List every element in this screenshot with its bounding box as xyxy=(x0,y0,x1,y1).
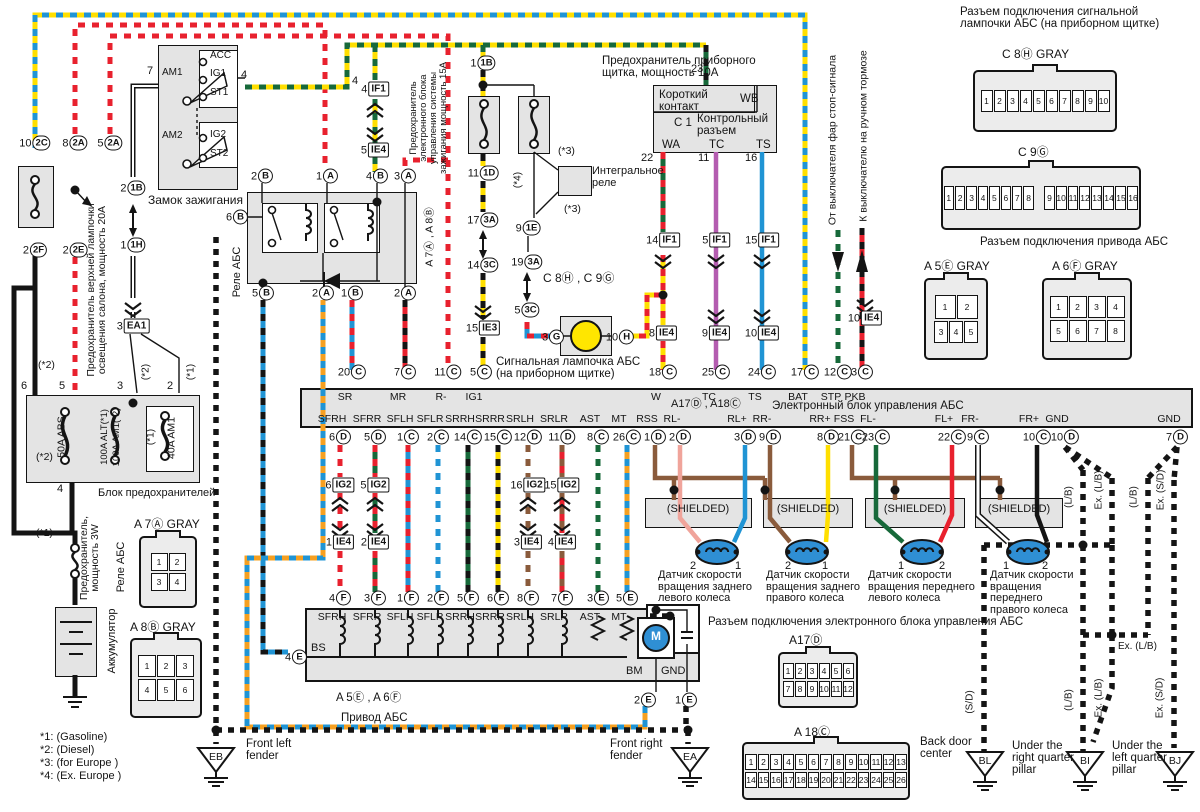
fuse-ref-IE4: 10IE4 xyxy=(745,326,779,341)
pin-number: 2 xyxy=(63,244,69,256)
connector-pin-row: 12345678910111213 xyxy=(744,754,908,770)
diagram-label: 100A AM1(*2) xyxy=(112,397,122,477)
connector-pin-cell: 1 xyxy=(151,553,168,571)
diagram-label: Ex. (L/B) xyxy=(1095,669,1106,727)
pin-number: 2 xyxy=(120,182,126,194)
pin-number: 7 xyxy=(551,592,557,604)
diagram-label: 5 xyxy=(59,381,65,393)
pin-C: 22C xyxy=(938,430,966,445)
pin-D: 9D xyxy=(759,430,781,445)
diagram-label: C 1 xyxy=(674,117,692,129)
connector-pin-cell: 5 xyxy=(964,321,978,343)
pin-B: 1B xyxy=(341,286,363,301)
pin-number: 5 xyxy=(97,137,103,149)
pin-D: 5D xyxy=(364,430,386,445)
diagram-label: От выключателя фар стоп-сигнала xyxy=(827,51,838,229)
ecu-pin-label: TC xyxy=(702,392,716,403)
connector-pin-cell: 6 xyxy=(808,754,820,770)
pin-E: 4E xyxy=(285,650,307,665)
pin-number: 18 xyxy=(649,366,661,378)
connector-pin-row: 5678 xyxy=(1044,320,1130,342)
connector-pin-cell: 3 xyxy=(966,186,976,210)
pin-D: 3D xyxy=(734,430,756,445)
connector-pin-cell: 4 xyxy=(783,754,795,770)
connector-pin-cell: 11 xyxy=(831,681,842,697)
connector-pin-cell: 5 xyxy=(831,663,842,679)
connector-pin-cell: 10 xyxy=(1056,186,1067,210)
connector-pin-cell: 8 xyxy=(1072,90,1084,112)
pin-D: 7D xyxy=(1166,430,1188,445)
pin-number: 4 xyxy=(285,651,291,663)
actuator-pin-label: SFLH xyxy=(387,612,414,623)
pin-code: B xyxy=(259,286,274,301)
connector-pin-cell: 2 xyxy=(157,655,175,677)
pin-code: 2E xyxy=(70,243,88,258)
connector-pin-cell: 10 xyxy=(819,681,830,697)
diagram-label: (S/D) xyxy=(966,681,977,723)
pin-C: 5C xyxy=(470,365,492,380)
fuse-ref-IG2: 5IG2 xyxy=(360,478,389,493)
pin-E: 1E xyxy=(675,693,697,708)
pin-code: D xyxy=(1173,430,1188,445)
diagram-label: Датчик скорости вращения заднего правого… xyxy=(766,570,876,605)
diagram-label: IG1 xyxy=(210,69,226,80)
connector-pin-row: 12345678910 xyxy=(975,90,1115,112)
connector-pin-cell: 6 xyxy=(1046,90,1058,112)
connector-pin-row: 123456 xyxy=(780,663,856,679)
pin-code: C xyxy=(858,365,873,380)
pin-code: IF1 xyxy=(758,233,778,248)
connector-pin-cell: 3 xyxy=(807,663,818,679)
pin-code: IE4 xyxy=(368,143,389,158)
connector-pin-cell: 12 xyxy=(883,754,895,770)
connector-pin-cell: 11 xyxy=(1068,186,1079,210)
pin-code: C xyxy=(662,365,677,380)
pin-C: 17C xyxy=(791,365,819,380)
pin-number: 1 xyxy=(341,287,347,299)
pin-number: 5 xyxy=(457,592,463,604)
diagram-label: GND xyxy=(661,666,685,678)
diagram-label: (L/B) xyxy=(1065,679,1076,721)
pin-number: 10 xyxy=(848,312,860,324)
fuse-ref-IG2: 6IG2 xyxy=(325,478,354,493)
pin-code: C xyxy=(761,365,776,380)
connector-pin-cell: 1 xyxy=(944,186,954,210)
connector-title: C 9Ⓖ xyxy=(1018,146,1049,159)
ecu-pin-label: SR xyxy=(338,392,353,403)
component-box xyxy=(518,96,550,154)
pin-code: H xyxy=(619,330,634,345)
diagram-label: (*2) xyxy=(38,360,55,371)
diagram-label: Ex. (L/B) xyxy=(1118,642,1157,653)
actuator-pin-label: SRRR xyxy=(475,612,505,623)
pin-code: A xyxy=(401,169,416,184)
pin-3A: 173A xyxy=(467,213,498,228)
diagram-label: 16 xyxy=(745,153,757,165)
pin-number: 25 xyxy=(702,366,714,378)
pin-code: 2F xyxy=(30,243,47,258)
pin-number: 12 xyxy=(824,366,836,378)
pin-code: F xyxy=(524,591,539,606)
connector-pin-cell: 1 xyxy=(138,655,156,677)
pin-code: F xyxy=(494,591,509,606)
pin-F: 6F xyxy=(487,591,509,606)
connector-pin-cell: 15 xyxy=(1115,186,1126,210)
pin-2A: 82A xyxy=(62,136,87,151)
ecu-pin-label: SRRR xyxy=(475,414,505,425)
pin-code: C xyxy=(401,365,416,380)
diagram-label: (*2) xyxy=(36,452,53,463)
pin-code: IE4 xyxy=(333,535,354,550)
diagram-label: Привод АБС xyxy=(341,712,408,724)
pin-code: E xyxy=(641,693,656,708)
diagram-label: 1 xyxy=(735,561,741,573)
component-box xyxy=(262,203,318,253)
connector-pin-cell: 4 xyxy=(819,663,830,679)
connector-pin-cell: 2 xyxy=(1069,296,1087,318)
connector-tab xyxy=(1032,64,1058,72)
fuse-ref-EA1: 3EA1 xyxy=(117,319,150,334)
connector-pin-cell: 1 xyxy=(745,754,757,770)
pin-F: 8F xyxy=(517,591,539,606)
diagram-label: (*3) xyxy=(564,204,581,215)
pin-B: 2B xyxy=(251,169,273,184)
pin-E: 2E xyxy=(634,693,656,708)
ecu-pin-label: SRLH xyxy=(506,414,534,425)
pin-3C: 53C xyxy=(514,303,539,318)
diagram-label: 1 xyxy=(1003,561,1009,573)
diagram-label: (SHIELDED) xyxy=(667,504,729,516)
connector-pin-cell: 7 xyxy=(820,754,832,770)
pin-number: 1 xyxy=(470,57,476,69)
pin-1H: 11H xyxy=(120,238,145,253)
ecu-pin-label: SFRH xyxy=(318,414,347,425)
pin-E: 3E xyxy=(587,591,609,606)
pin-code: C xyxy=(477,365,492,380)
pin-code: IE3 xyxy=(479,321,500,336)
pin-code: C xyxy=(447,365,462,380)
component-box xyxy=(324,203,380,253)
connector-title: A 5Ⓔ GRAY xyxy=(924,260,990,273)
pin-code: C xyxy=(497,430,512,445)
pin-number: 20 xyxy=(338,366,350,378)
pin-number: 1 xyxy=(316,170,322,182)
connector-pin-cell: 17 xyxy=(783,772,795,788)
diagram-label: 50A ABS xyxy=(56,409,67,465)
fuse-ref-IE4: 2IE4 xyxy=(361,535,389,550)
ground-code: EB xyxy=(209,752,223,763)
diagram-label: (*3) xyxy=(558,146,575,157)
pin-number: 3 xyxy=(514,536,520,548)
pin-code: IE4 xyxy=(368,535,389,550)
pin-3A: 193A xyxy=(511,255,542,270)
connector-pin-cell: 9 xyxy=(807,681,818,697)
diagram-label: 2 xyxy=(785,561,791,573)
diagram-label: Сигнальная лампочка АБС (на приборном щи… xyxy=(496,356,654,380)
connector-pin-row: 456 xyxy=(132,679,200,701)
connector-view-A18Ⓒ: 1234567891011121314151617181920212223242… xyxy=(742,742,910,800)
connector-pin-cell: 1 xyxy=(783,663,794,679)
ecu-pin-label: FL+ xyxy=(935,414,953,425)
ground-code: BI xyxy=(1080,756,1090,767)
diagram-label: (SHIELDED) xyxy=(884,504,946,516)
pin-number: 5 xyxy=(361,144,367,156)
connector-pin-cell: 3 xyxy=(770,754,782,770)
ecu-pin-label: RSS xyxy=(636,414,658,425)
fuse-ref-IF1: 14IF1 xyxy=(646,233,680,248)
pin-code: 2A xyxy=(69,136,87,151)
pin-number: 8 xyxy=(649,327,655,339)
connector-pin-cell: 4 xyxy=(169,573,186,591)
pin-number: 5 xyxy=(514,304,520,316)
connector-gap xyxy=(1034,186,1043,210)
connector-pin-cell: 8 xyxy=(833,754,845,770)
connector-pin-cell: 8 xyxy=(1023,186,1033,210)
pin-code: 1B xyxy=(127,181,145,196)
diagram-label: *4: (Ex. Europe ) xyxy=(40,771,121,783)
pin-1D: 111D xyxy=(468,166,499,181)
connector-pin-cell: 8 xyxy=(1107,320,1125,342)
pin-number: 6 xyxy=(325,479,331,491)
diagram-label: 40A AM1 xyxy=(166,410,177,466)
pin-D: 8D xyxy=(817,430,839,445)
connector-pin-cell: 6 xyxy=(176,679,194,701)
pin-C: 10C xyxy=(1023,430,1051,445)
pin-code: 3A xyxy=(525,255,543,270)
diagram-label: 2 xyxy=(167,381,173,393)
pin-code: IE4 xyxy=(709,326,730,341)
component-box xyxy=(560,316,612,356)
pin-number: 22 xyxy=(938,431,950,443)
diagram-label: 7 xyxy=(147,66,153,78)
ecu-pin-label: W xyxy=(651,392,661,403)
pin-number: 1 xyxy=(326,536,332,548)
connector-pin-cell: 3 xyxy=(151,573,168,591)
connector-pin-cell: 12 xyxy=(843,681,854,697)
diagram-label: Реле АБС xyxy=(116,536,128,598)
connector-pin-cell: 24 xyxy=(870,772,882,788)
actuator-pin-label: SRRH xyxy=(445,612,475,623)
pin-number: 2 xyxy=(427,592,433,604)
pin-code: D xyxy=(741,430,756,445)
diagram-label: Контрольный разъем xyxy=(697,113,789,137)
diagram-label: Ex. (L/B) xyxy=(1095,461,1106,519)
pin-3C: 143C xyxy=(467,258,498,273)
connector-pin-cell: 1 xyxy=(1050,296,1068,318)
pin-code: IE4 xyxy=(656,326,677,341)
fuse-ref-IE3: 15IE3 xyxy=(466,321,500,336)
fuse-ref-IF1: 5IF1 xyxy=(702,233,730,248)
pin-number: 15 xyxy=(745,234,757,246)
component-box xyxy=(468,96,500,154)
diagram-label: Ex. (S/D) xyxy=(1157,461,1168,519)
diagram-label: Under the right quarter pillar xyxy=(1012,740,1074,777)
diagram-label: TC xyxy=(709,139,724,151)
pin-code: D xyxy=(651,430,666,445)
pin-code: IG2 xyxy=(524,478,546,493)
ecu-pin-label: IG1 xyxy=(466,392,483,403)
connector-pin-cell: 9 xyxy=(1044,186,1054,210)
fuse-ref-IE4: 9IE4 xyxy=(702,326,730,341)
connector-pin-cell: 4 xyxy=(138,679,156,701)
pin-2E: 22E xyxy=(63,243,88,258)
component-box xyxy=(18,166,54,228)
pin-number: 21 xyxy=(838,431,850,443)
diagram-label: A 7Ⓐ , A 8Ⓑ xyxy=(424,187,435,287)
diagram-label: (*1) xyxy=(36,528,53,539)
connector-pin-cell: 9 xyxy=(845,754,857,770)
pin-C: 2C xyxy=(427,430,449,445)
fuse-ref-IE4: 8IE4 xyxy=(649,326,677,341)
pin-code: C xyxy=(875,430,890,445)
diagram-label: Back door center xyxy=(920,736,984,760)
pin-1E: 91E xyxy=(516,221,541,236)
pin-code: C xyxy=(715,365,730,380)
ecu-pin-label: STP xyxy=(821,392,841,403)
diagram-label: Предохранитель, мощность 3W xyxy=(79,496,101,621)
diagram-label: WA xyxy=(662,139,680,151)
diagram-label: (SHIELDED) xyxy=(988,504,1050,516)
pin-1B: 21B xyxy=(120,181,145,196)
pin-F: 7F xyxy=(551,591,573,606)
diagram-label: Предохранитель верхней лампочки освещени… xyxy=(86,175,108,405)
pin-F: 4F xyxy=(329,591,351,606)
pin-code: IG2 xyxy=(368,478,390,493)
pin-C: 8C xyxy=(587,430,609,445)
ecu-pin-label: R- xyxy=(435,392,446,403)
ecu-pin-label: FR- xyxy=(961,414,979,425)
pin-number: 17 xyxy=(791,366,803,378)
connector-pin-cell: 2 xyxy=(957,295,978,319)
pin-code: B xyxy=(233,210,248,225)
pin-code: E xyxy=(623,591,638,606)
pin-number: 3 xyxy=(587,592,593,604)
pin-number: 3 xyxy=(394,170,400,182)
connector-view-A6ⒻGRAY: 12345678 xyxy=(1042,278,1132,360)
diagram-label: (*1) xyxy=(187,357,198,387)
pin-number: 14 xyxy=(646,234,658,246)
connector-view-A7ⒶGRAY: 1234 xyxy=(139,536,197,608)
pin-number: 8 xyxy=(817,431,823,443)
abs-wiring-diagram: Замок зажигания744ACCIG1ST1AM1AM2IG2ST2П… xyxy=(0,0,1200,812)
connector-pin-cell: 15 xyxy=(758,772,770,788)
pin-code: F xyxy=(464,591,479,606)
pin-code: 1B xyxy=(477,56,495,71)
pin-code: 1D xyxy=(480,166,498,181)
pin-B: 4B xyxy=(366,169,388,184)
connector-pin-cell: 11 xyxy=(870,754,882,770)
connector-pin-cell: 12 xyxy=(1079,186,1090,210)
pin-code: D xyxy=(527,430,542,445)
fuse-ref-IG2: 15IG2 xyxy=(544,478,579,493)
connector-pin-cell: 6 xyxy=(843,663,854,679)
pin-C: 12C xyxy=(824,365,852,380)
pin-number: 10 xyxy=(606,331,618,343)
pin-code: IG2 xyxy=(558,478,580,493)
pin-code: C xyxy=(837,365,852,380)
diagram-label: Блок предохранителей xyxy=(98,488,216,500)
pin-A: 3A xyxy=(394,169,416,184)
pin-number: 3 xyxy=(542,331,548,343)
connector-pin-cell: 5 xyxy=(1050,320,1068,342)
motor-label: M xyxy=(651,630,661,643)
pin-number: 8 xyxy=(517,592,523,604)
connector-pin-cell: 4 xyxy=(1107,296,1125,318)
pin-C: 3C xyxy=(851,365,873,380)
pin-B: 5B xyxy=(252,286,274,301)
pin-F: 1F xyxy=(397,591,419,606)
pin-number: 9 xyxy=(702,327,708,339)
connector-tab xyxy=(805,646,831,654)
ecu-pin-label: BAT xyxy=(788,392,808,403)
connector-pin-cell: 4 xyxy=(949,321,963,343)
pin-number: 1 xyxy=(397,592,403,604)
connector-tab xyxy=(1028,160,1054,168)
diagram-label: 4 xyxy=(57,484,63,496)
connector-pin-cell: 5 xyxy=(1033,90,1045,112)
pin-code: IG2 xyxy=(333,478,355,493)
pin-number: 2 xyxy=(634,694,640,706)
pin-code: C xyxy=(951,430,966,445)
ground-code: BJ xyxy=(1169,756,1181,767)
pin-1B: 11B xyxy=(470,56,495,71)
diagram-label: Реле АБС xyxy=(232,241,244,303)
actuator-pin-label: SRLH xyxy=(506,612,534,623)
diagram-label: Предохранитель электронного блока управл… xyxy=(409,51,449,185)
pin-code: IE4 xyxy=(758,326,779,341)
fuse-ref-IE4: 5IE4 xyxy=(361,143,389,158)
pin-F: 2F xyxy=(427,591,449,606)
pin-C: 9C xyxy=(967,430,989,445)
diagram-label: Разъем подключения электронного блока уп… xyxy=(708,616,1023,628)
pin-number: 10 xyxy=(745,327,757,339)
diagram-label: (*1) xyxy=(147,422,158,452)
pin-number: 15 xyxy=(544,479,556,491)
connector-pin-cell: 6 xyxy=(1069,320,1087,342)
connector-title: A 8Ⓑ GRAY xyxy=(130,621,196,634)
diagram-label: (L/B) xyxy=(1130,476,1141,518)
pin-C: 25C xyxy=(702,365,730,380)
pin-2C: 102C xyxy=(19,136,50,151)
pin-code: F xyxy=(371,591,386,606)
ecu-pin-label: MT xyxy=(611,414,626,425)
pin-code: D xyxy=(371,430,386,445)
pin-code: C xyxy=(351,365,366,380)
pin-code: D xyxy=(766,430,781,445)
connector-pin-cell: 10 xyxy=(858,754,870,770)
pin-code: C xyxy=(467,430,482,445)
connector-tab xyxy=(943,272,969,280)
connector-pin-cell: 7 xyxy=(1088,320,1106,342)
connector-view-C9Ⓖ: 12345678910111213141516 xyxy=(941,166,1141,230)
diagram-label: 6 xyxy=(21,381,27,393)
diagram-label: C 8Ⓗ , C 9Ⓖ xyxy=(543,272,614,285)
pin-number: 11 xyxy=(548,431,559,443)
pin-A: 2A xyxy=(312,286,334,301)
diagram-label: *3: (for Europe ) xyxy=(40,758,118,770)
pin-number: 3 xyxy=(117,320,123,332)
pin-number: 4 xyxy=(548,536,554,548)
pin-number: 5 xyxy=(470,366,476,378)
pin-code: F xyxy=(434,591,449,606)
diagram-label: 4 xyxy=(241,70,247,82)
fuse-ref-IE4: 1IE4 xyxy=(326,535,354,550)
pin-number: 5 xyxy=(616,592,622,604)
ecu-pin-label: SFLR xyxy=(417,414,444,425)
connector-pin-cell: 14 xyxy=(745,772,757,788)
diagram-label: 2 xyxy=(690,561,696,573)
connector-title: A 7Ⓐ GRAY xyxy=(134,518,200,531)
